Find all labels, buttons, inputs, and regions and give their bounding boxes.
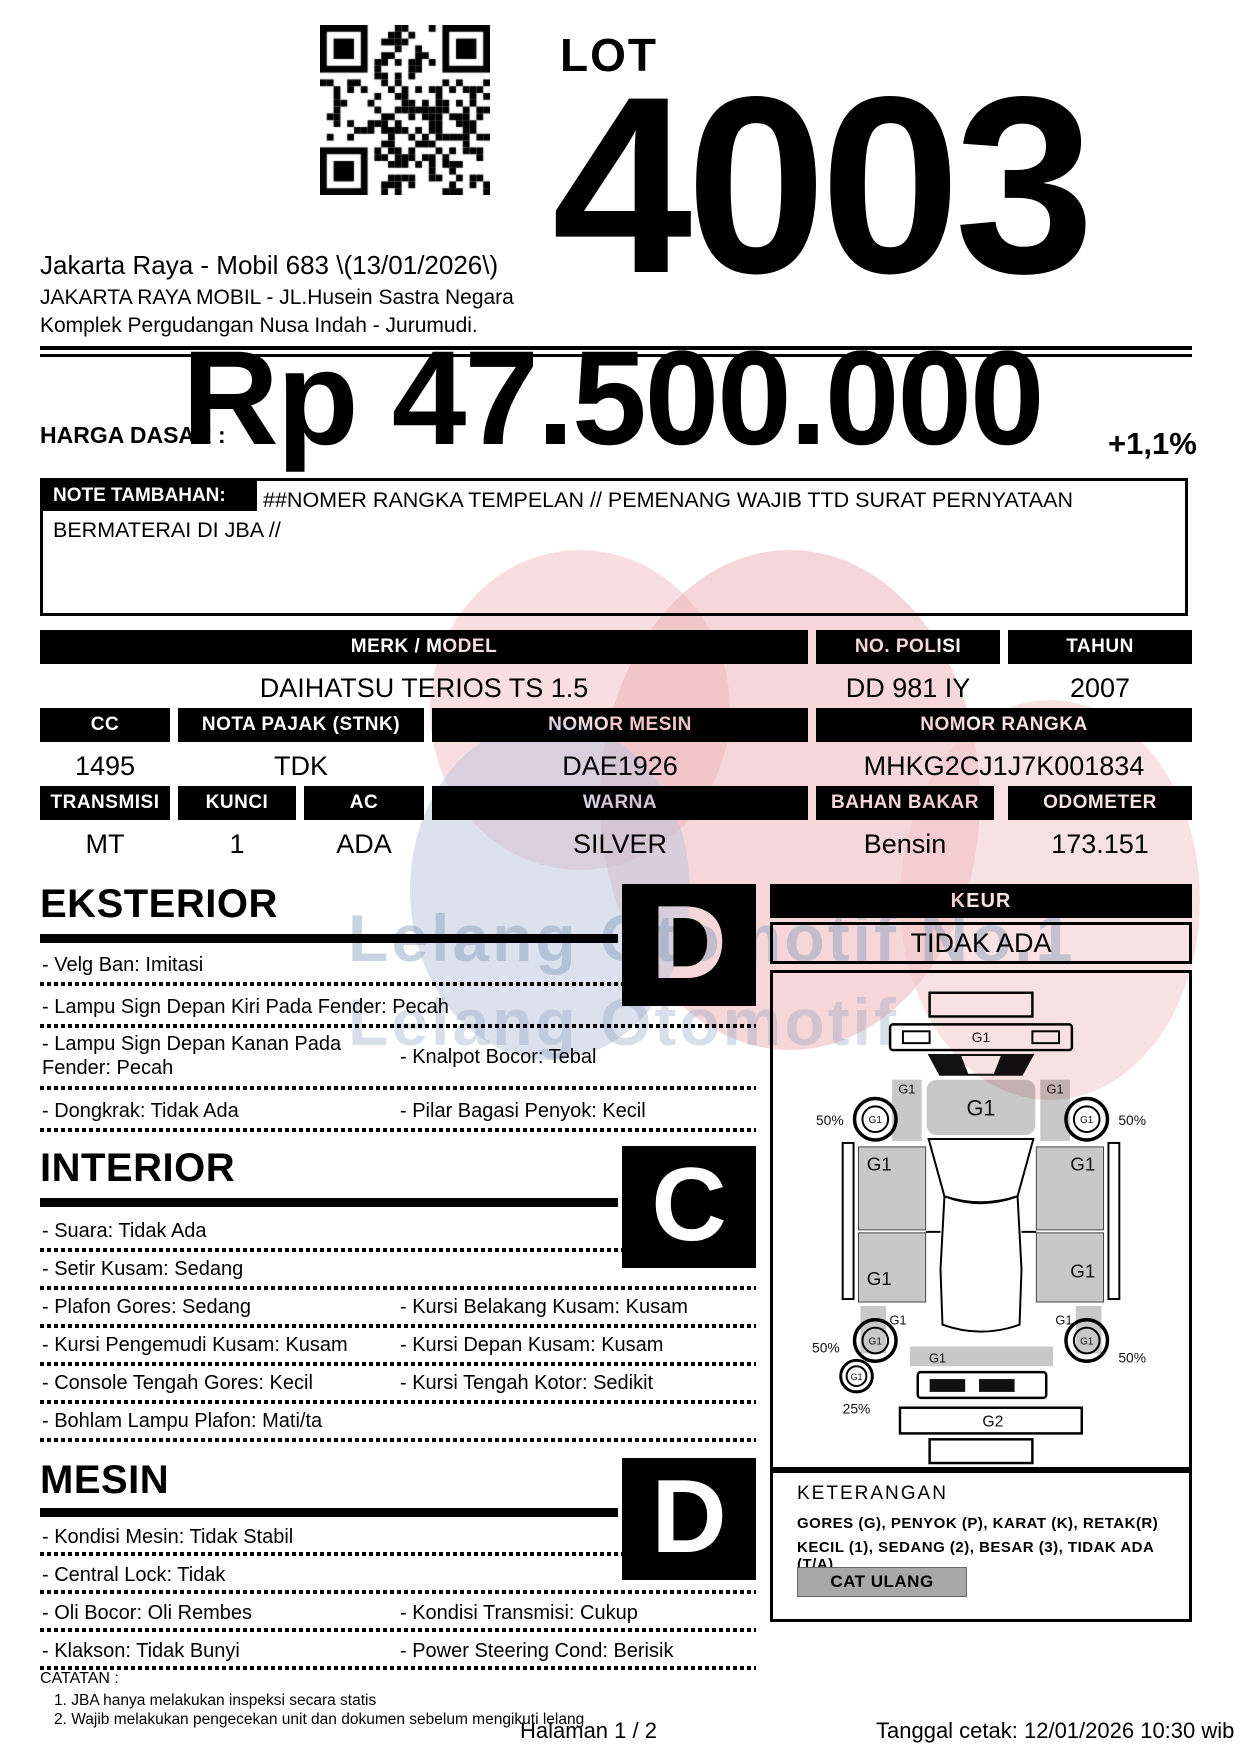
value-nomor-mesin: DAE1926 bbox=[432, 750, 808, 782]
col-header-nomor-mesin: NOMOR MESIN bbox=[432, 708, 808, 742]
grade-box-eksterior: D bbox=[622, 884, 756, 1006]
dotted-divider bbox=[40, 1128, 756, 1132]
base-price-amount: Rp 47.500.000 bbox=[182, 332, 1043, 466]
col-header-merk-model: MERK / MODEL bbox=[40, 630, 808, 664]
page-indicator: Halaman 1 / 2 bbox=[520, 1718, 657, 1744]
lot-number: 4003 bbox=[552, 60, 1089, 312]
code-tailgate: G1 bbox=[929, 1350, 946, 1365]
dotted-divider bbox=[40, 1400, 756, 1404]
front-plate bbox=[930, 993, 1033, 1017]
col-header-bahan-bakar: BAHAN BAKAR bbox=[816, 786, 994, 820]
legend-damage-codes: GORES (G), PENYOK (P), KARAT (K), RETAK(… bbox=[797, 1515, 1158, 1532]
interior-item: - Bohlam Lampu Plafon: Mati/ta bbox=[42, 1408, 322, 1434]
value-nota-pajak: TDK bbox=[178, 750, 424, 782]
windshield bbox=[929, 1139, 1034, 1202]
dotted-divider bbox=[40, 1362, 756, 1366]
fog-lamp-left bbox=[903, 1031, 930, 1043]
section-underline bbox=[40, 1198, 618, 1207]
value-transmisi: MT bbox=[40, 828, 170, 860]
col-header-transmisi: TRANSMISI bbox=[40, 786, 170, 820]
pct-spare: 25% bbox=[843, 1401, 871, 1417]
interior-item: - Setir Kusam: Sedang bbox=[42, 1256, 243, 1282]
section-title-eksterior: EKSTERIOR bbox=[40, 882, 278, 927]
col-header-cc: CC bbox=[40, 708, 170, 742]
qr-code-icon bbox=[320, 25, 490, 195]
value-kunci: 1 bbox=[178, 828, 296, 860]
car-damage-diagram: G1 G1 G1 G1 G1 G1 50% 50% G1 G1 G1 G1 G1… bbox=[770, 970, 1192, 1470]
code-fender-left: G1 bbox=[898, 1082, 915, 1097]
code-front-bumper: G1 bbox=[972, 1029, 991, 1045]
catatan-item: 2. Wajib melakukan pengecekan unit dan d… bbox=[54, 1711, 584, 1729]
dotted-divider bbox=[40, 1666, 756, 1670]
section-underline bbox=[40, 934, 618, 943]
col-header-nota-pajak: NOTA PAJAK (STNK) bbox=[178, 708, 424, 742]
interior-item: - Suara: Tidak Ada bbox=[42, 1218, 207, 1244]
value-odometer: 173.151 bbox=[1008, 828, 1192, 860]
mesin-item: - Power Steering Cond: Berisik bbox=[400, 1638, 673, 1664]
code-fender-right: G1 bbox=[1047, 1082, 1064, 1097]
mesin-item: - Central Lock: Tidak bbox=[42, 1562, 225, 1588]
interior-item: - Kursi Tengah Kotor: Sedikit bbox=[400, 1370, 653, 1396]
mesin-item: - Oli Bocor: Oli Rembes bbox=[42, 1600, 252, 1626]
dotted-divider bbox=[40, 1628, 756, 1632]
side-step-left bbox=[843, 1143, 854, 1299]
value-cc: 1495 bbox=[40, 750, 170, 782]
col-header-nomor-rangka: NOMOR RANGKA bbox=[816, 708, 1192, 742]
mesin-item: - Kondisi Mesin: Tidak Stabil bbox=[42, 1524, 293, 1550]
pct-front-right: 50% bbox=[1118, 1112, 1146, 1128]
grade-box-mesin: D bbox=[622, 1458, 756, 1580]
address-line-1: JAKARTA RAYA MOBIL - JL.Husein Sastra Ne… bbox=[40, 286, 514, 310]
rear-plate bbox=[930, 1439, 1033, 1463]
code-door-fl: G1 bbox=[867, 1154, 892, 1175]
dotted-divider bbox=[40, 1438, 756, 1442]
code-rear-g2: G2 bbox=[982, 1413, 1003, 1430]
pct-front-left: 50% bbox=[816, 1112, 844, 1128]
interior-item: - Kursi Belakang Kusam: Kusam bbox=[400, 1294, 688, 1320]
eksterior-item: - Lampu Sign Depan Kiri Pada Fender: Pec… bbox=[42, 994, 449, 1020]
eksterior-item: - Lampu Sign Depan Kanan Pada Fender: Pe… bbox=[42, 1032, 382, 1080]
note-box: NOTE TAMBAHAN: ##NOMER RANGKA TEMPELAN /… bbox=[40, 478, 1188, 616]
value-bahan-bakar: Bensin bbox=[816, 828, 994, 860]
catatan-title: CATATAN : bbox=[40, 1670, 119, 1688]
catatan-item: 1. JBA hanya melakukan inspeksi secara s… bbox=[54, 1692, 376, 1710]
dotted-divider bbox=[40, 1024, 756, 1028]
code-door-rr: G1 bbox=[1070, 1260, 1095, 1281]
col-header-ac: AC bbox=[304, 786, 424, 820]
dotted-divider bbox=[40, 1086, 756, 1090]
value-tahun: 2007 bbox=[1008, 672, 1192, 704]
code-quarter-left: G1 bbox=[889, 1313, 906, 1328]
code-wheel-fl: G1 bbox=[869, 1115, 883, 1126]
col-header-no-polisi: NO. POLISI bbox=[816, 630, 1000, 664]
code-wheel-rr: G1 bbox=[1080, 1336, 1094, 1347]
interior-item: - Kursi Pengemudi Kusam: Kusam bbox=[42, 1332, 348, 1358]
interior-item: - Plafon Gores: Sedang bbox=[42, 1294, 251, 1320]
pct-rear-right: 50% bbox=[1118, 1349, 1146, 1365]
rear-reflector-left bbox=[930, 1379, 966, 1392]
code-door-rl: G1 bbox=[867, 1268, 892, 1289]
keterangan-title: KETERANGAN bbox=[797, 1483, 948, 1505]
code-door-fr: G1 bbox=[1070, 1154, 1095, 1175]
fog-lamp-right bbox=[1032, 1031, 1059, 1043]
grade-box-interior: C bbox=[622, 1146, 756, 1268]
mesin-item: - Kondisi Transmisi: Cukup bbox=[400, 1600, 638, 1626]
col-header-kunci: KUNCI bbox=[178, 786, 296, 820]
value-ac: ADA bbox=[304, 828, 424, 860]
section-title-interior: INTERIOR bbox=[40, 1146, 235, 1191]
keur-value: TIDAK ADA bbox=[770, 922, 1192, 964]
section-underline bbox=[40, 1508, 618, 1517]
cat-ulang-chip: CAT ULANG bbox=[797, 1567, 967, 1597]
dotted-divider bbox=[40, 1590, 756, 1594]
lot-sheet-page: LOT 4003 Jakarta Raya - Mobil 683 \(13/0… bbox=[0, 0, 1240, 1754]
grille-notch bbox=[961, 1056, 1001, 1074]
eksterior-item: - Knalpot Bocor: Tebal bbox=[400, 1044, 596, 1070]
side-step-right bbox=[1108, 1143, 1119, 1299]
col-header-warna: WARNA bbox=[432, 786, 808, 820]
code-hood: G1 bbox=[967, 1095, 996, 1120]
code-wheel-rl: G1 bbox=[869, 1336, 883, 1347]
interior-item: - Kursi Depan Kusam: Kusam bbox=[400, 1332, 663, 1358]
dotted-divider bbox=[40, 1286, 756, 1290]
dotted-divider bbox=[40, 1324, 756, 1328]
code-spare: G1 bbox=[851, 1372, 863, 1382]
eksterior-item: - Pilar Bagasi Penyok: Kecil bbox=[400, 1098, 646, 1124]
note-label: NOTE TAMBAHAN: bbox=[43, 481, 257, 511]
keterangan-box: KETERANGAN GORES (G), PENYOK (P), KARAT … bbox=[770, 1470, 1192, 1622]
auction-title: Jakarta Raya - Mobil 683 \(13/01/2026\) bbox=[40, 250, 498, 281]
price-increment: +1,1% bbox=[1108, 426, 1197, 462]
value-nomor-rangka: MHKG2CJ1J7K001834 bbox=[816, 750, 1192, 782]
code-quarter-right: G1 bbox=[1055, 1313, 1072, 1328]
col-header-odometer: ODOMETER bbox=[1008, 786, 1192, 820]
value-no-polisi: DD 981 IY bbox=[816, 672, 1000, 704]
col-header-tahun: TAHUN bbox=[1008, 630, 1192, 664]
mesin-item: - Klakson: Tidak Bunyi bbox=[42, 1638, 240, 1664]
interior-item: - Console Tengah Gores: Kecil bbox=[42, 1370, 313, 1396]
print-timestamp: Tanggal cetak: 12/01/2026 10:30 wib bbox=[876, 1718, 1192, 1744]
rear-reflector-right bbox=[979, 1379, 1015, 1392]
eksterior-item: - Dongkrak: Tidak Ada bbox=[42, 1098, 239, 1124]
eksterior-item: - Velg Ban: Imitasi bbox=[42, 952, 203, 978]
keur-header: KEUR bbox=[770, 884, 1192, 918]
roof bbox=[940, 1196, 1021, 1331]
code-wheel-fr: G1 bbox=[1080, 1115, 1094, 1126]
value-merk-model: DAIHATSU TERIOS TS 1.5 bbox=[40, 672, 808, 704]
section-title-mesin: MESIN bbox=[40, 1458, 169, 1503]
value-warna: SILVER bbox=[432, 828, 808, 860]
car-top-view: G1 G1 G1 G1 G1 G1 50% 50% G1 G1 G1 G1 G1… bbox=[773, 973, 1189, 1467]
pct-rear-left: 50% bbox=[812, 1339, 840, 1355]
